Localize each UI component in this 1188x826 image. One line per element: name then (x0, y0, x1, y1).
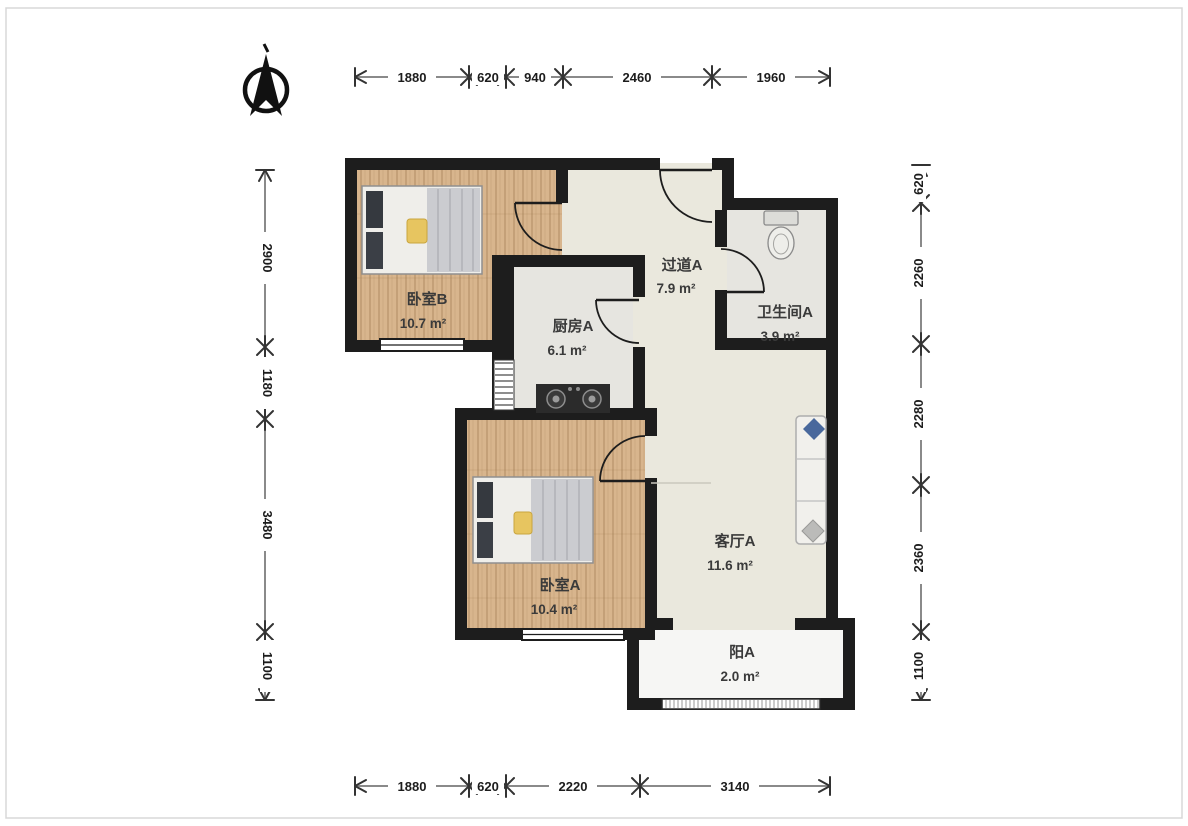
bedroom-b-label: 卧室B (407, 290, 448, 308)
bedroom-a-area: 10.4 m² (531, 602, 578, 617)
floor-plan-canvas: 卧室B 10.7 m² 厨房A 6.1 m² 过道A 7.9 m² 卫生间A 3… (0, 0, 1188, 826)
dim-top-1: 1880 (398, 70, 427, 85)
bedroom-a-window-icon (522, 629, 624, 640)
dimension-line-left: 2900 1180 3480 1100 (256, 170, 277, 700)
dim-top-2: 620 (477, 70, 499, 85)
hallway-label: 过道A (662, 256, 703, 274)
bedroom-b-area: 10.7 m² (400, 316, 447, 331)
dim-right-2: 2260 (911, 259, 926, 288)
kitchen-label: 厨房A (553, 317, 594, 335)
dim-left-2: 1180 (260, 369, 275, 397)
bathroom-label: 卫生间A (757, 303, 813, 321)
balcony-label: 阳A (729, 644, 755, 661)
balcony-window-icon (662, 699, 820, 709)
dim-bottom-3: 2220 (559, 779, 588, 794)
dim-bottom-2: 620 (477, 779, 499, 794)
bed-b-icon (362, 186, 482, 274)
dim-right-1: 620 (911, 173, 926, 195)
kitchen-area: 6.1 m² (547, 343, 587, 358)
dim-right-3: 2280 (911, 400, 926, 429)
bed-a-icon (473, 477, 593, 563)
living-room-area: 11.6 m² (707, 558, 753, 573)
floor-plan-page: 卧室B 10.7 m² 厨房A 6.1 m² 过道A 7.9 m² 卫生间A 3… (0, 0, 1188, 826)
dim-left-4: 1100 (260, 652, 275, 680)
dim-right-5: 1100 (911, 652, 926, 680)
dimension-line-right: 620 2260 2280 2360 1100 (909, 165, 930, 700)
dim-top-3: 940 (524, 70, 546, 85)
dim-bottom-4: 3140 (721, 779, 750, 794)
hallway-area: 7.9 m² (656, 281, 696, 296)
dim-left-3: 3480 (260, 511, 275, 540)
dimension-line-top: 1880 620 940 2460 1960 (355, 66, 830, 88)
pipe-shaft-icon (494, 360, 514, 410)
dim-top-4: 2460 (623, 70, 652, 85)
balcony-area: 2.0 m² (720, 669, 760, 684)
stove-icon (536, 384, 610, 413)
bedroom-a-label: 卧室A (540, 576, 581, 594)
balcony-floor (639, 630, 843, 698)
dim-top-5: 1960 (757, 70, 786, 85)
bedroom-b-window-icon (380, 339, 464, 351)
dim-bottom-1: 1880 (398, 779, 427, 794)
dimension-line-bottom: 1880 620 2220 3140 (355, 775, 830, 797)
sofa-icon (796, 416, 826, 544)
north-compass-icon (245, 44, 287, 116)
living-room-label: 客厅A (714, 532, 756, 550)
dim-right-4: 2360 (911, 544, 926, 573)
bathroom-area: 3.9 m² (760, 329, 800, 344)
dim-left-1: 2900 (260, 244, 275, 273)
